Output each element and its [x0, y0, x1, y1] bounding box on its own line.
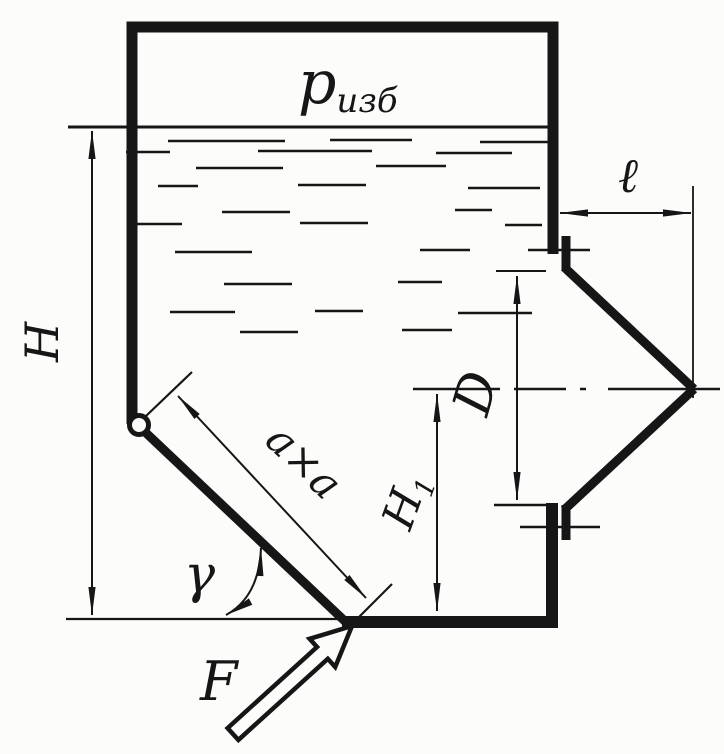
label-H: H	[15, 321, 69, 363]
label-gamma: γ	[184, 545, 216, 605]
label-p-sub: изб	[336, 81, 397, 121]
liquid-texture-dashes	[126, 140, 548, 332]
label-D: D	[442, 365, 511, 423]
label-l: ℓ	[618, 148, 638, 204]
label-p-izb: pизб	[298, 48, 398, 121]
cone-top-edge	[564, 267, 694, 389]
angle-arc	[226, 548, 261, 615]
tank-figure: H pизб ℓ D H1 a×a γ F	[0, 0, 724, 754]
diagram-canvas: H pизб ℓ D H1 a×a γ F	[0, 0, 724, 754]
hinge-pin	[130, 416, 149, 435]
label-H1: H1	[372, 466, 443, 538]
tank-wall-bottom-right	[342, 503, 552, 622]
label-p-main: p	[298, 48, 336, 118]
extension-axa-top	[146, 372, 192, 416]
force-arrow	[228, 626, 352, 740]
label-F: F	[199, 650, 240, 713]
cone-bottom-edge	[564, 389, 694, 510]
